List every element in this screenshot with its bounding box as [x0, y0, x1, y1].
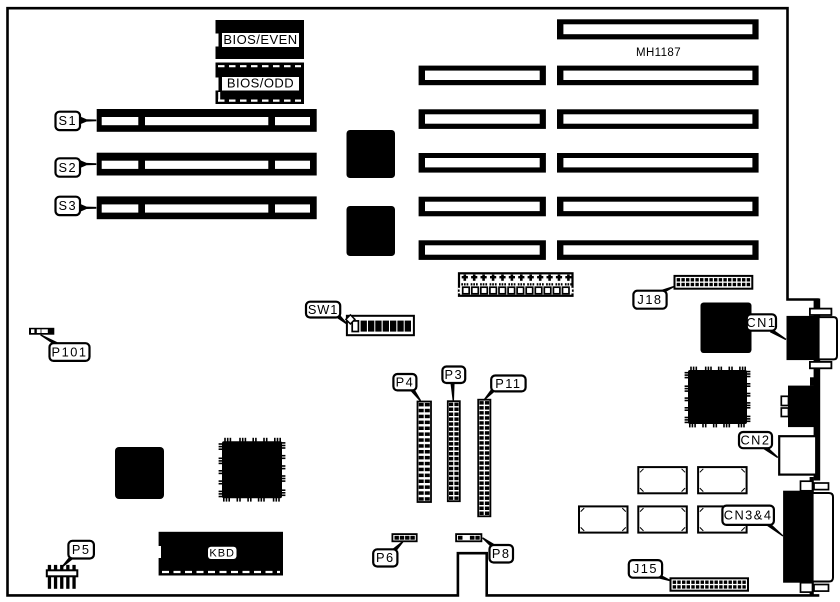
svg-text:S1: S1: [58, 113, 77, 128]
svg-text:P101: P101: [52, 344, 88, 359]
svg-text:CN1: CN1: [746, 315, 776, 330]
svg-text:BIOS/EVEN: BIOS/EVEN: [223, 32, 297, 47]
svg-text:SW1: SW1: [308, 302, 338, 317]
svg-text:P4: P4: [396, 375, 415, 390]
svg-text:S3: S3: [58, 198, 77, 213]
svg-text:CN2: CN2: [740, 432, 770, 447]
svg-text:MH1187: MH1187: [636, 47, 681, 59]
svg-text:P3: P3: [444, 367, 463, 382]
svg-text:S2: S2: [58, 160, 77, 175]
svg-text:J15: J15: [633, 561, 658, 576]
svg-text:BIOS/ODD: BIOS/ODD: [227, 76, 294, 91]
svg-text:P8: P8: [492, 546, 511, 561]
svg-text:KBD: KBD: [209, 547, 235, 559]
svg-text:P5: P5: [72, 542, 91, 557]
svg-text:J18: J18: [637, 292, 662, 307]
svg-text:P6: P6: [376, 550, 395, 565]
svg-text:CN3&4: CN3&4: [724, 508, 773, 523]
svg-text:P11: P11: [495, 376, 521, 391]
